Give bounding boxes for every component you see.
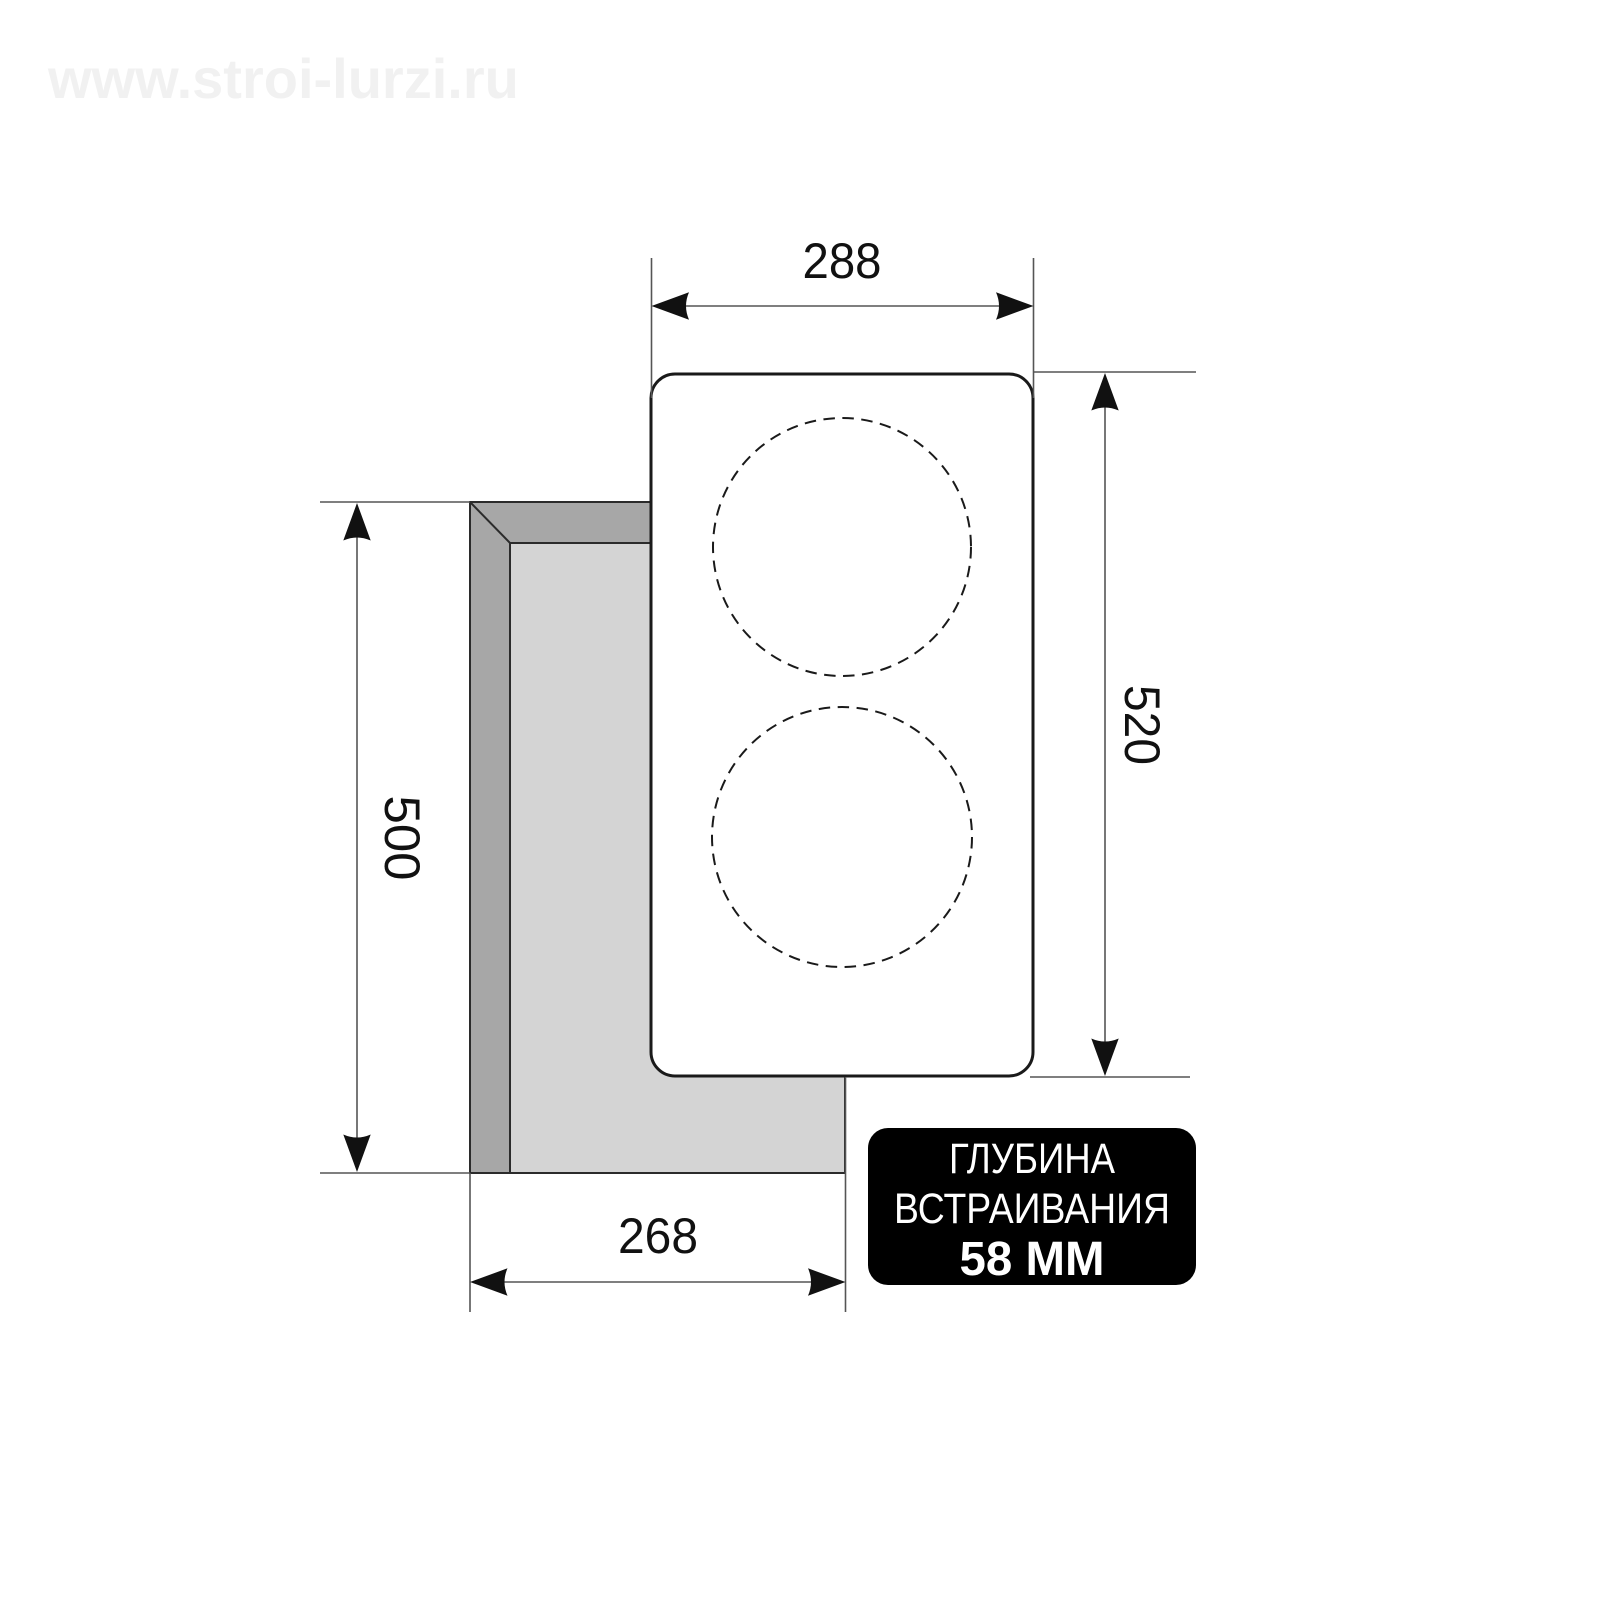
- svg-text:520: 520: [1114, 685, 1170, 765]
- svg-text:ВСТРАИВАНИЯ: ВСТРАИВАНИЯ: [894, 1185, 1170, 1233]
- svg-text:www.stroi-lurzi.ru: www.stroi-lurzi.ru: [47, 47, 519, 110]
- svg-text:288: 288: [803, 233, 882, 289]
- svg-text:ГЛУБИНА: ГЛУБИНА: [949, 1135, 1115, 1183]
- svg-text:268: 268: [618, 1208, 698, 1264]
- svg-text:58 ММ: 58 ММ: [960, 1233, 1105, 1286]
- svg-text:500: 500: [374, 796, 430, 881]
